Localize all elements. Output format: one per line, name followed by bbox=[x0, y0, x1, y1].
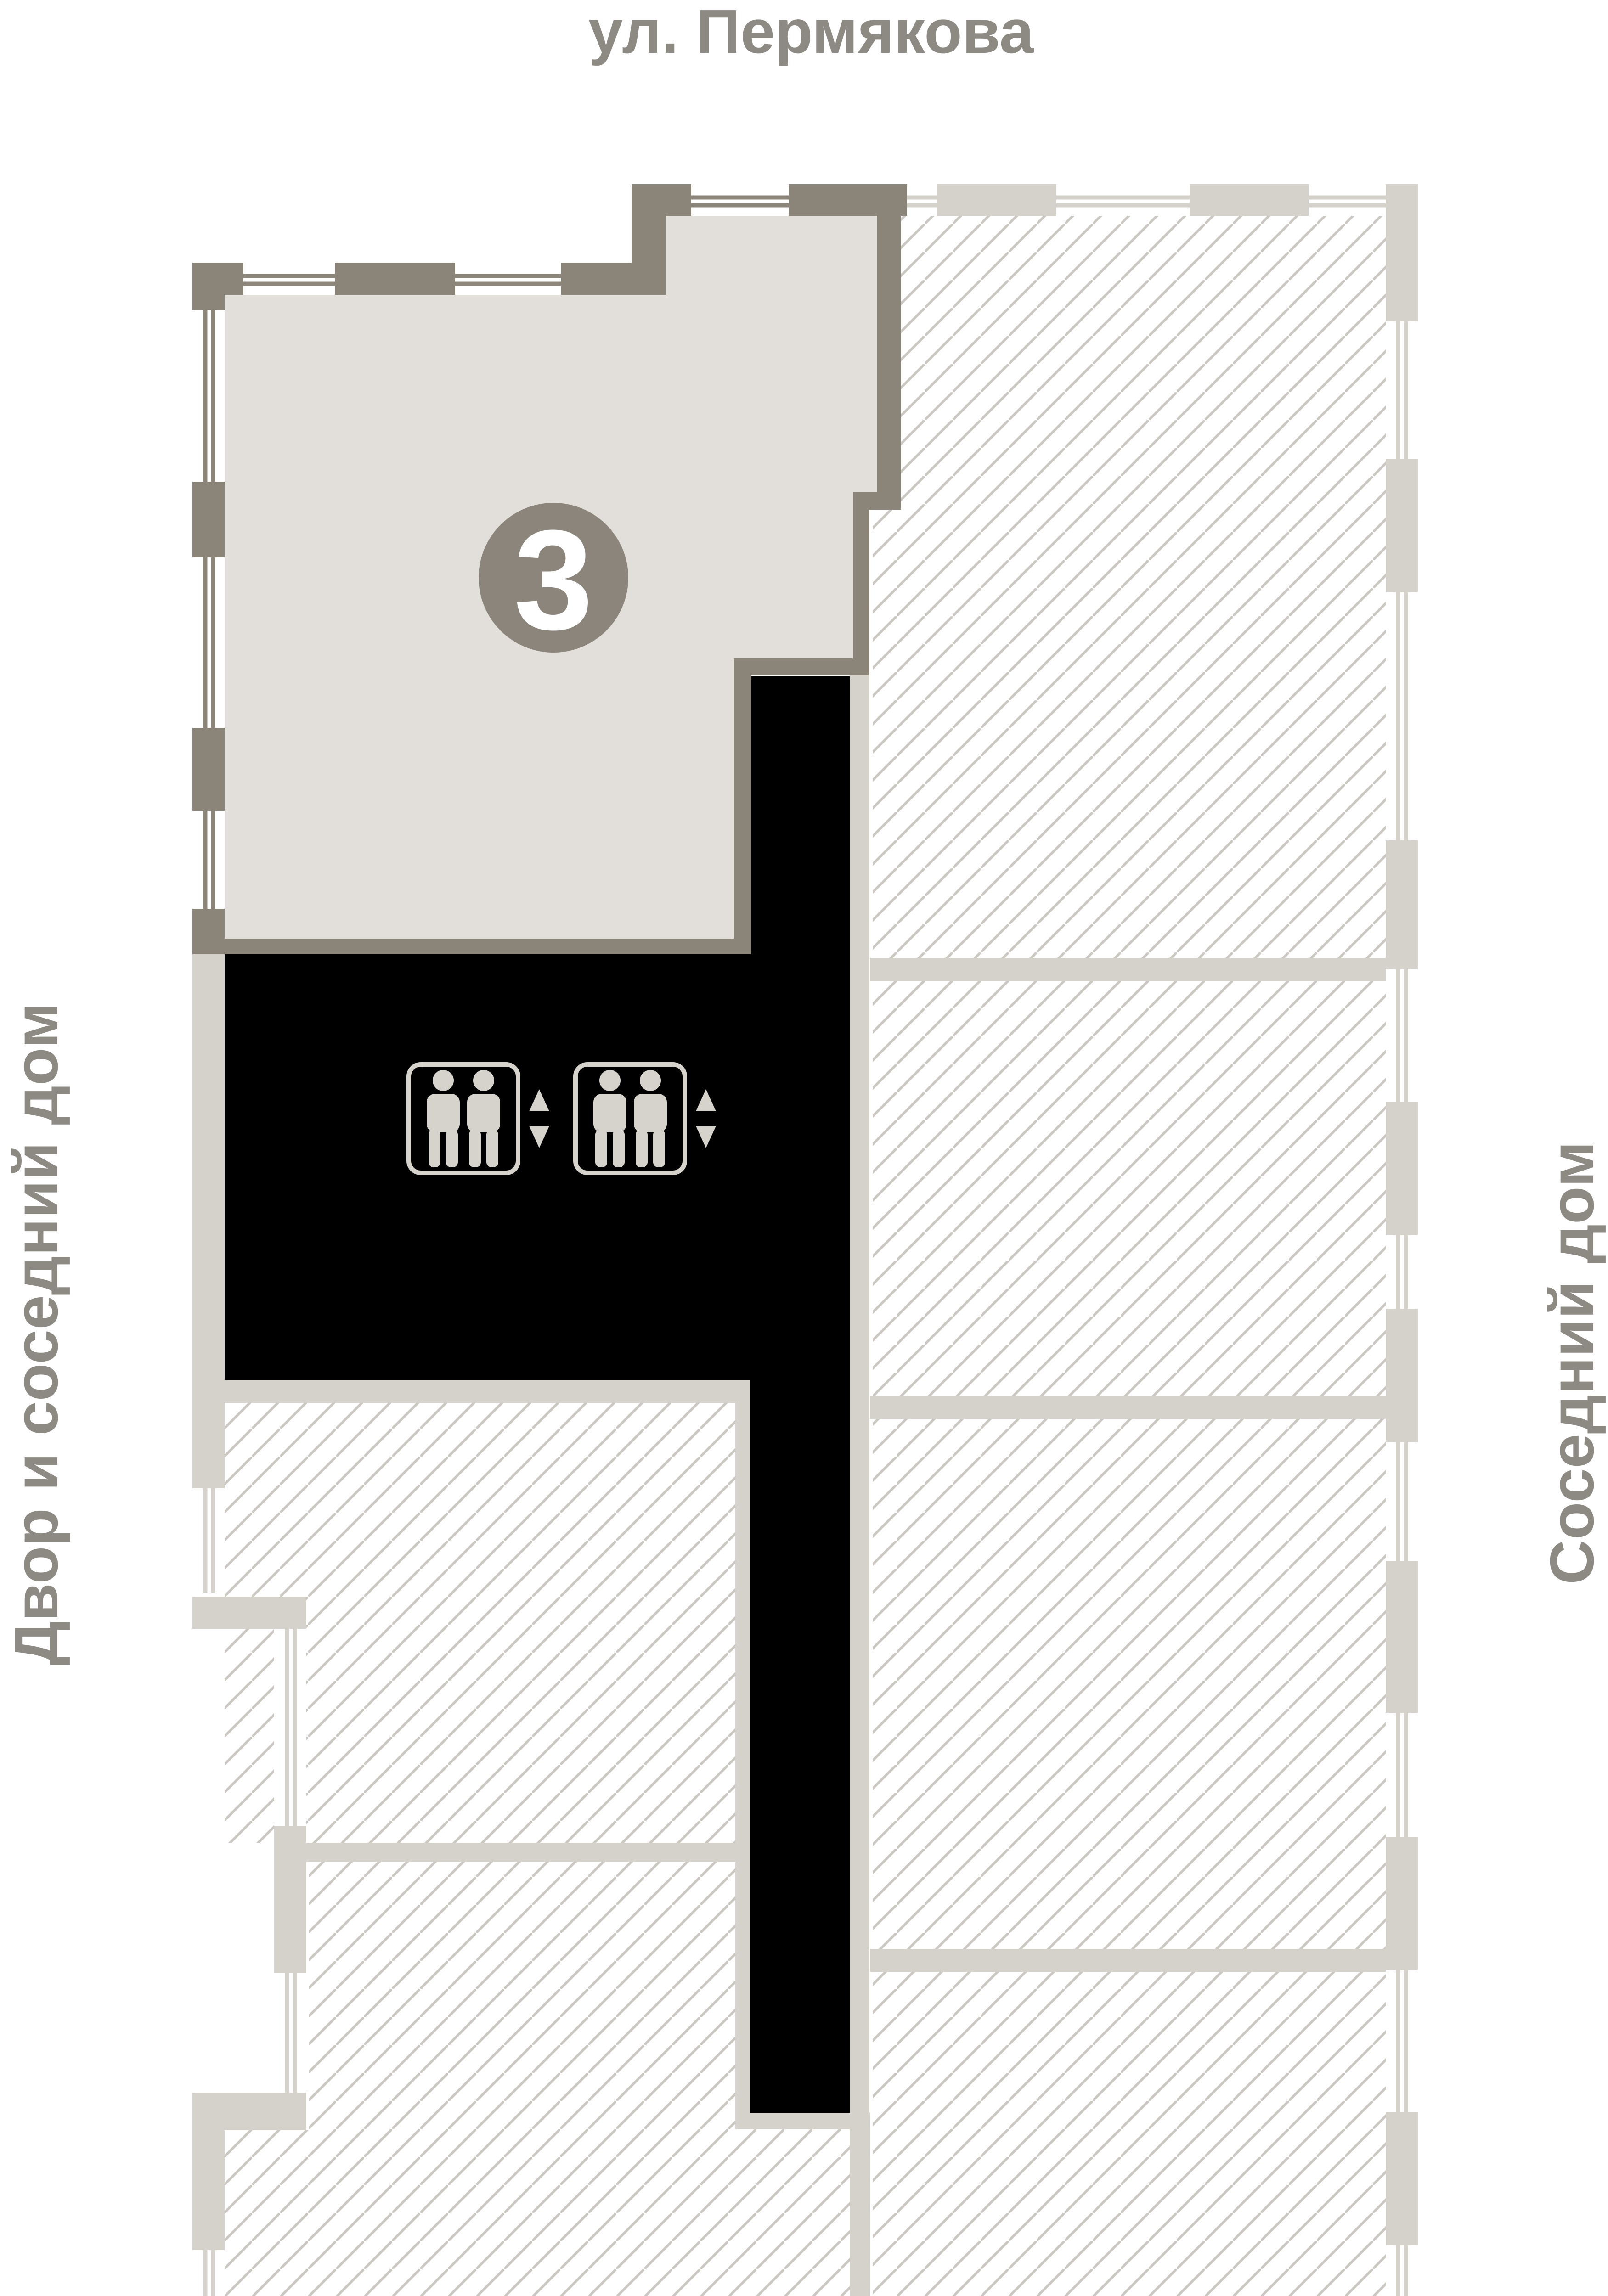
wall-segment bbox=[192, 1380, 750, 1403]
outer-wall-right bbox=[1386, 184, 1418, 2296]
wall-segment bbox=[870, 958, 1418, 981]
wall-segment bbox=[192, 2130, 225, 2250]
wall-band bbox=[192, 295, 225, 954]
wall-segment bbox=[1386, 459, 1418, 592]
wall-segment bbox=[1386, 1561, 1418, 1713]
wall-segment bbox=[1386, 2112, 1418, 2245]
wall-segment bbox=[192, 482, 225, 557]
street-label-left: Двор и соседний дом bbox=[1, 1002, 71, 1665]
wall-segment bbox=[870, 1949, 1418, 1972]
wall-segment bbox=[192, 728, 225, 811]
wall-segment bbox=[274, 1826, 306, 1973]
wall-segment bbox=[192, 1597, 306, 1629]
wall-segment bbox=[1386, 1309, 1418, 1442]
unit-hatched-right-3 bbox=[873, 1419, 1386, 1949]
floor-plan: 3 ул. Пермякова Двор и соседний дом Сосе… bbox=[0, 0, 1608, 2296]
street-label-top: ул. Пермякова bbox=[588, 0, 1034, 66]
wall-segment bbox=[734, 658, 751, 954]
wall-segment bbox=[192, 939, 751, 954]
wall-segment bbox=[192, 263, 225, 310]
unit-hatched-right-4 bbox=[873, 1972, 1386, 2296]
wall-segment bbox=[1386, 1837, 1418, 1970]
outer-wall-top-light bbox=[907, 184, 1418, 216]
unit-hatched-top-right bbox=[873, 216, 1386, 958]
floor-plan-page: 3 ул. Пермякова Двор и соседний дом Сосе… bbox=[0, 0, 1608, 2296]
wall-segment bbox=[277, 1843, 750, 1862]
wall-segment bbox=[735, 1380, 750, 2129]
wall-segment bbox=[1386, 1102, 1418, 1235]
corridor-core-column bbox=[750, 676, 850, 2113]
wall-segment bbox=[870, 1396, 1418, 1419]
wall-segment bbox=[1190, 184, 1309, 216]
wall-segment bbox=[192, 954, 225, 1488]
wall-segment bbox=[850, 2113, 870, 2296]
wall-segment bbox=[853, 492, 869, 675]
wall-segment bbox=[937, 184, 1056, 216]
wall-segment bbox=[850, 675, 869, 2113]
wall-segment bbox=[1386, 840, 1418, 969]
wall-segment bbox=[1386, 184, 1418, 321]
street-label-right: Соседний дом bbox=[1537, 1141, 1607, 1584]
wall-segment bbox=[734, 658, 869, 675]
wall-segment bbox=[192, 2093, 306, 2130]
wall-segment bbox=[335, 263, 455, 295]
wall-segment bbox=[877, 184, 901, 510]
wall-band bbox=[192, 2250, 225, 2296]
wall-band bbox=[192, 1488, 225, 1593]
badge-number: 3 bbox=[514, 500, 593, 659]
wall-segment bbox=[632, 184, 666, 295]
unit-hatched-right-2 bbox=[873, 981, 1386, 1396]
